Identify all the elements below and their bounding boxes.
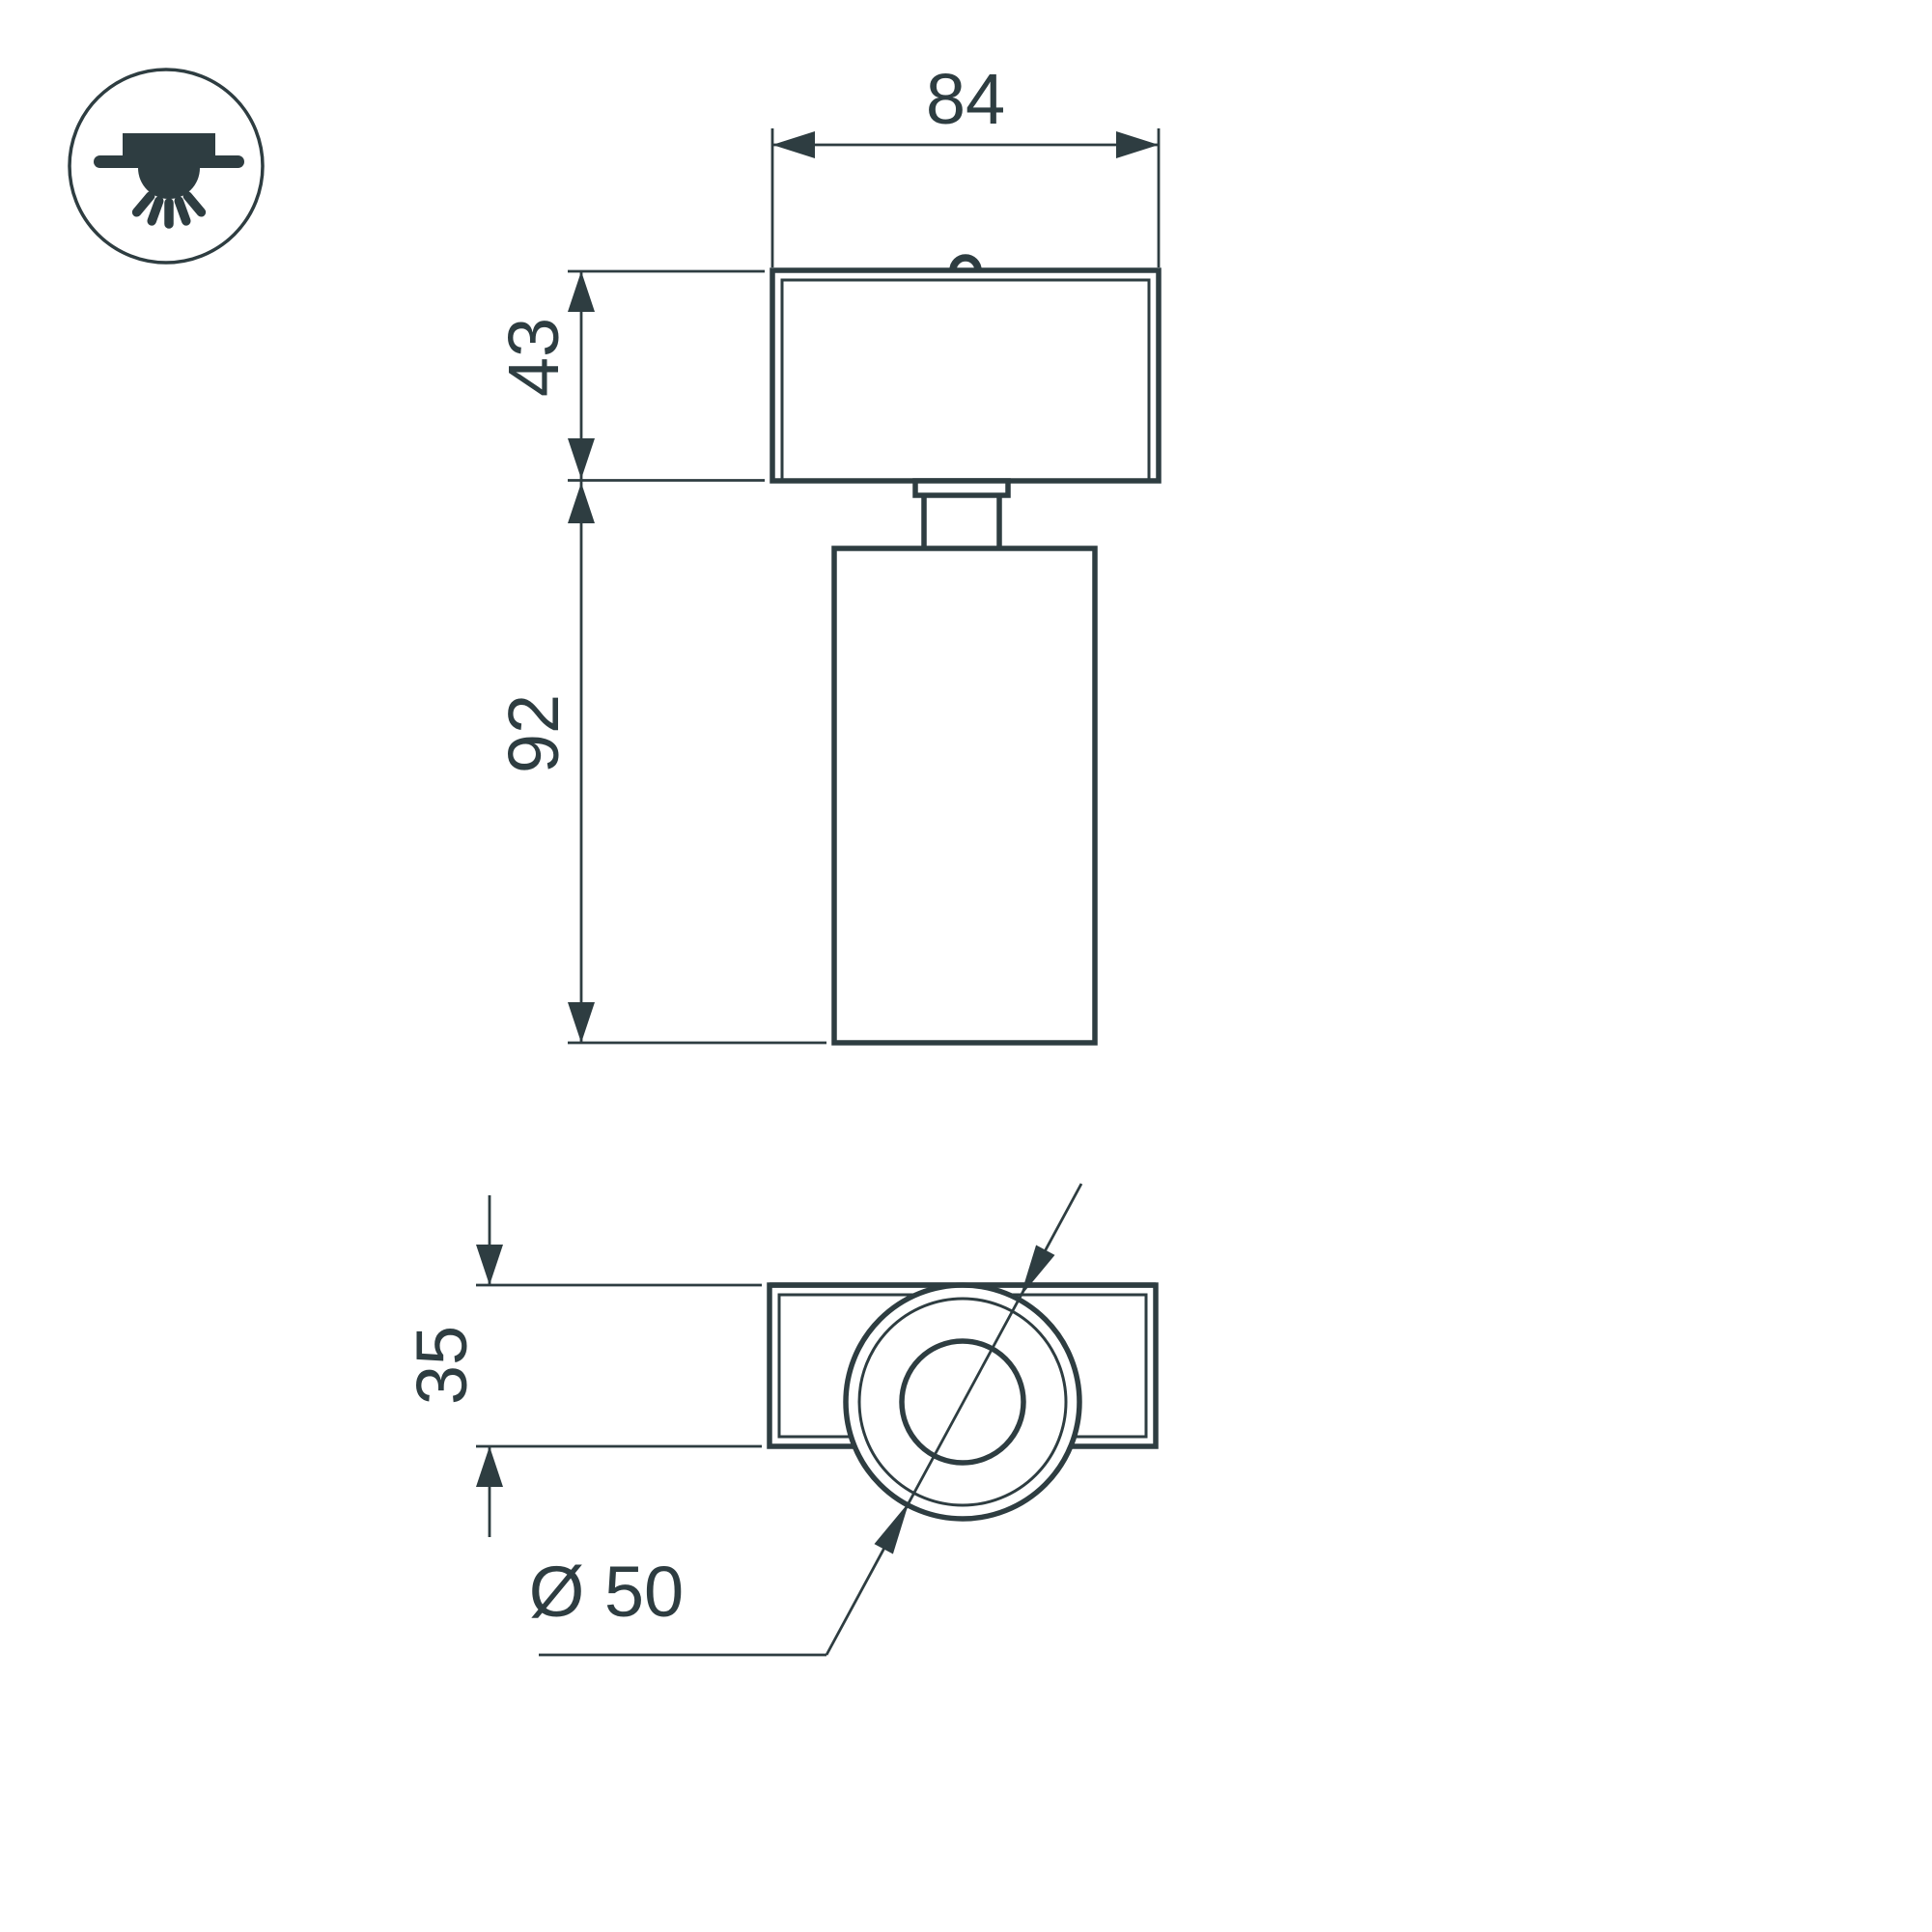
arrow-up-icon: [568, 271, 595, 312]
icon-ceiling-bar: [94, 155, 244, 168]
arrow-left-icon: [772, 131, 815, 158]
drawing-page: 84 43 92: [0, 0, 1932, 1932]
dimension-label-diameter: Ø 50: [529, 1552, 684, 1632]
swivel-collar: [915, 481, 1008, 495]
arrow-up-icon: [568, 483, 595, 523]
plan-view: 35 Ø 50: [402, 1184, 1156, 1655]
front-view: 84 43 92: [493, 59, 1159, 1043]
dimension-width-84: 84: [772, 59, 1159, 267]
arrow-down-icon: [476, 1245, 503, 1285]
mounting-base-outline: [772, 270, 1159, 481]
arrow-right-icon: [1116, 131, 1159, 158]
arrow-up-right-icon: [875, 1502, 910, 1554]
arrow-up-icon: [476, 1446, 503, 1487]
arrow-down-icon: [568, 1002, 595, 1043]
arrow-down-left-icon: [1021, 1246, 1055, 1298]
lamp-body-outline: [834, 548, 1095, 1043]
dimension-label-width: 84: [926, 59, 1005, 139]
dimension-label-depth: 35: [402, 1326, 482, 1405]
icon-light-rays: [137, 196, 202, 224]
surface-mounted-ceiling-light-icon: [70, 70, 263, 263]
dimension-label-body-height: 92: [493, 694, 574, 773]
dimension-label-base-height: 43: [493, 318, 574, 397]
dimension-depth-35: 35: [402, 1195, 762, 1537]
dimension-drawing: 84 43 92: [0, 0, 1932, 1932]
icon-lamp-housing: [123, 133, 215, 158]
arrow-down-icon: [568, 438, 595, 479]
